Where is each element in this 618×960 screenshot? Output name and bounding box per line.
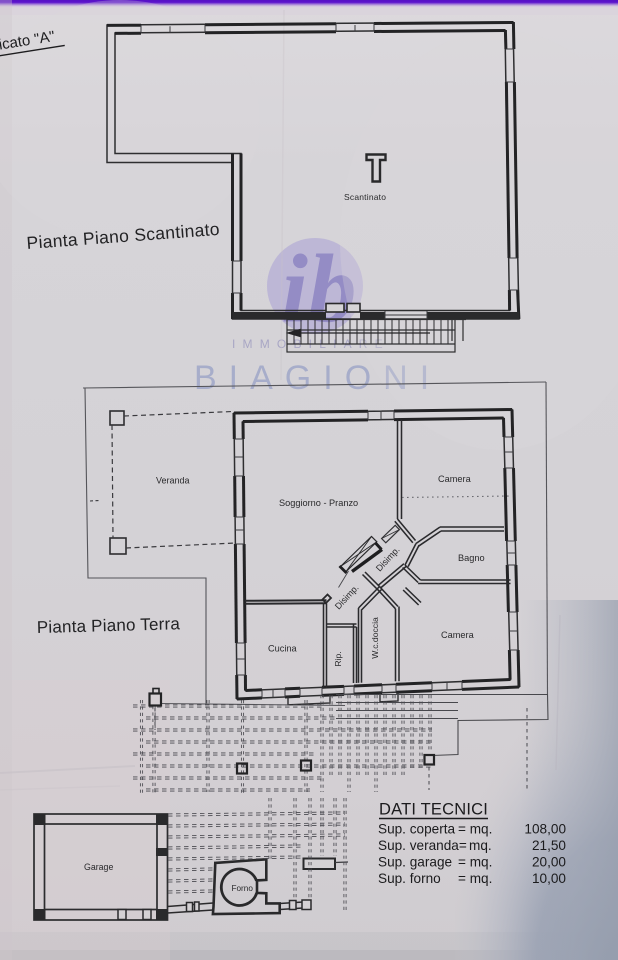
svg-text:20,00: 20,00 xyxy=(532,855,566,870)
svg-text:Sup. garage: Sup. garage xyxy=(378,855,452,870)
svg-text:= mq.: = mq. xyxy=(458,871,492,886)
svg-text:= mq.: = mq. xyxy=(458,822,492,837)
svg-text:Rip.: Rip. xyxy=(333,651,343,666)
svg-text:W.c.doccia: W.c.doccia xyxy=(370,617,380,659)
svg-text:DATI TECNICI: DATI TECNICI xyxy=(379,801,488,819)
svg-text:Soggiorno - Pranzo: Soggiorno - Pranzo xyxy=(279,498,358,508)
svg-text:Bagno: Bagno xyxy=(458,553,485,563)
svg-text:Sup. veranda=: Sup. veranda= xyxy=(378,838,467,853)
svg-text:mq.: mq. xyxy=(469,838,492,853)
svg-text:108,00: 108,00 xyxy=(524,822,566,837)
svg-text:Garage: Garage xyxy=(84,862,113,872)
svg-text:Veranda: Veranda xyxy=(156,476,190,486)
svg-text:21,50: 21,50 xyxy=(532,838,566,853)
svg-text:Camera: Camera xyxy=(438,474,472,484)
svg-text:= mq.: = mq. xyxy=(458,855,492,870)
svg-text:10,00: 10,00 xyxy=(532,871,566,886)
svg-text:Camera: Camera xyxy=(441,630,475,640)
svg-text:Scantinato: Scantinato xyxy=(344,192,386,202)
svg-text:Sup. coperta: Sup. coperta xyxy=(378,822,456,837)
svg-text:Pianta Piano Terra: Pianta Piano Terra xyxy=(37,614,181,637)
svg-text:Forno: Forno xyxy=(232,884,254,893)
svg-text:Sup. forno: Sup. forno xyxy=(378,871,441,886)
svg-text:Cucina: Cucina xyxy=(268,644,297,654)
